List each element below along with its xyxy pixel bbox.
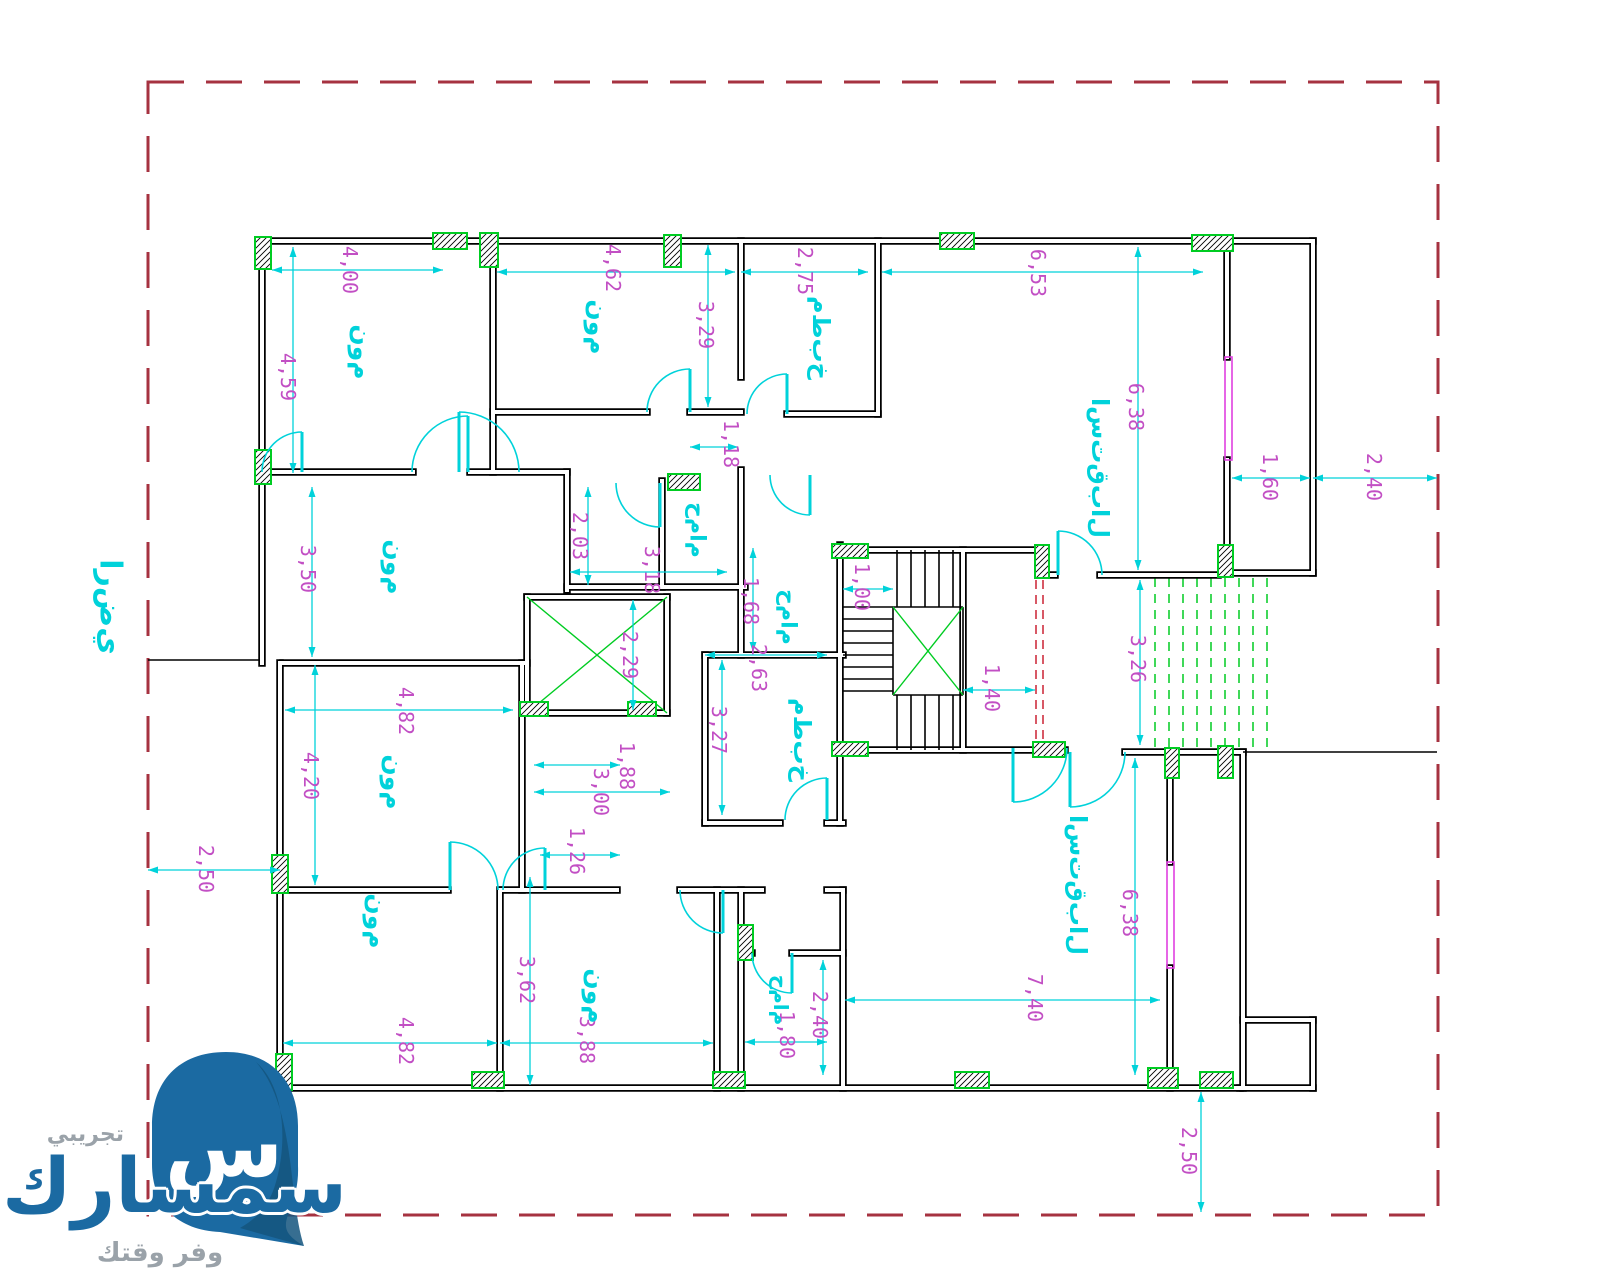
room-label-reception: ل‌ا‌ب‌ق‌ت‌س‌ا bbox=[1086, 398, 1114, 538]
room-label-bathroom: م‌ا‌م‌ح bbox=[685, 502, 710, 558]
dimension: 4,62 bbox=[497, 244, 735, 292]
dim-arrow bbox=[1198, 1092, 1205, 1102]
dim-arrow bbox=[820, 1065, 827, 1075]
dimension: 1,88 bbox=[534, 742, 639, 790]
dimension: 1,26 bbox=[540, 827, 620, 875]
window bbox=[1225, 357, 1232, 460]
dim-arrow bbox=[690, 444, 700, 451]
dim-arrow bbox=[1300, 475, 1310, 482]
dimension: 4,82 bbox=[283, 1017, 497, 1065]
dim-arrow bbox=[705, 397, 712, 407]
door-swing-arc bbox=[785, 778, 827, 820]
dimension: 6,38 bbox=[1118, 758, 1142, 1075]
dimension: 2,75 bbox=[741, 247, 868, 295]
column bbox=[520, 702, 548, 716]
column bbox=[1165, 748, 1179, 778]
column bbox=[1192, 235, 1233, 251]
room-label-bathroom: م‌ا‌م‌ح bbox=[769, 975, 793, 1026]
dim-text: 4,00 bbox=[338, 246, 362, 294]
room-label-bathroom: م‌ا‌م‌ح bbox=[776, 589, 801, 645]
dim-text: 3,00 bbox=[589, 768, 613, 816]
dim-text: 2,63 bbox=[747, 644, 771, 692]
column bbox=[255, 237, 271, 269]
dim-arrow bbox=[1132, 758, 1139, 768]
dim-text: 4,82 bbox=[394, 687, 418, 735]
door bbox=[1070, 752, 1125, 807]
cad-floor-plan-drawing: 4,004,594,623,292,756,536,381,182,033,18… bbox=[0, 0, 1600, 1280]
dim-arrow bbox=[630, 600, 637, 610]
dim-arrow bbox=[1025, 687, 1035, 694]
dimension: 1,18 bbox=[690, 420, 743, 468]
dim-text: 3,50 bbox=[296, 545, 320, 593]
column bbox=[738, 925, 753, 960]
dimension: 1,40 bbox=[963, 664, 1035, 712]
dim-arrow bbox=[1193, 269, 1203, 276]
door bbox=[770, 475, 810, 515]
room-label-bedroom: م‌و‌ن bbox=[362, 893, 392, 948]
dim-text: 2,50 bbox=[1177, 1127, 1201, 1175]
column bbox=[1218, 545, 1233, 577]
dim-arrow bbox=[487, 1040, 497, 1047]
dim-text: 3,27 bbox=[707, 706, 731, 754]
dim-arrow bbox=[285, 707, 295, 714]
dim-arrow bbox=[1198, 1202, 1205, 1212]
driveway-hatch bbox=[1155, 578, 1267, 748]
dim-text: 2,40 bbox=[808, 991, 832, 1039]
door bbox=[785, 778, 827, 820]
column bbox=[940, 233, 974, 249]
dim-text: 7,40 bbox=[1023, 974, 1047, 1022]
dim-text: 1,68 bbox=[739, 577, 763, 625]
door bbox=[647, 369, 690, 412]
dimension: 3,27 bbox=[707, 660, 731, 815]
entrance-opening bbox=[1036, 580, 1043, 745]
dim-arrow bbox=[1135, 247, 1142, 257]
dim-arrow bbox=[883, 586, 893, 593]
dim-arrow bbox=[534, 762, 544, 769]
dim-arrow bbox=[570, 569, 580, 576]
dim-arrow bbox=[717, 569, 727, 576]
dimension: 6,53 bbox=[882, 249, 1203, 297]
dim-arrow bbox=[290, 247, 297, 257]
column bbox=[955, 1072, 989, 1088]
column bbox=[713, 1072, 745, 1088]
dim-arrow bbox=[858, 269, 868, 276]
dim-text: 4,20 bbox=[299, 752, 323, 800]
dim-text: 4,62 bbox=[601, 244, 625, 292]
door-swing-arc bbox=[747, 374, 787, 414]
dimension: 1,60 bbox=[1232, 453, 1310, 501]
dim-text: 4,59 bbox=[276, 353, 300, 401]
dim-arrow bbox=[1427, 475, 1437, 482]
dim-arrow bbox=[527, 1075, 534, 1085]
door bbox=[616, 483, 660, 527]
door-swing-arc bbox=[1070, 752, 1125, 807]
dimension: 4,82 bbox=[285, 687, 513, 735]
room-label-kitchen: خ‌ب‌ط‌م bbox=[807, 296, 835, 381]
windows bbox=[1167, 357, 1232, 968]
dim-arrow bbox=[1132, 1065, 1139, 1075]
column bbox=[433, 233, 467, 249]
dim-text: 2,03 bbox=[568, 512, 592, 560]
door-swing-arc bbox=[770, 475, 810, 515]
dimension: 3,29 bbox=[694, 245, 718, 407]
column bbox=[668, 474, 700, 490]
dim-arrow bbox=[882, 269, 892, 276]
dimension: 2,40 bbox=[1313, 453, 1437, 501]
door-swing-arc bbox=[450, 842, 498, 890]
dim-text: 6,38 bbox=[1124, 383, 1148, 431]
door-swing-arc bbox=[616, 483, 660, 527]
dim-arrow bbox=[1137, 735, 1144, 745]
room-label-bedroom: م‌و‌ن bbox=[379, 754, 409, 809]
dimension: 3,00 bbox=[534, 768, 670, 816]
door bbox=[747, 374, 787, 414]
dimension: 3,26 bbox=[1126, 580, 1150, 745]
dim-text: 3,29 bbox=[694, 301, 718, 349]
dimension: 7,40 bbox=[845, 974, 1160, 1022]
dimension: 2,40 bbox=[808, 960, 832, 1075]
column bbox=[832, 742, 868, 756]
dim-arrow bbox=[817, 1039, 827, 1046]
room-label-bedroom: م‌و‌ن bbox=[380, 539, 410, 594]
dim-arrow bbox=[745, 1039, 755, 1046]
dim-arrow bbox=[1135, 560, 1142, 570]
dim-arrow bbox=[660, 789, 670, 796]
column bbox=[1033, 742, 1065, 757]
column bbox=[1035, 545, 1049, 578]
room-label-bedroom: م‌و‌ن bbox=[347, 324, 377, 379]
dim-text: 1,00 bbox=[850, 563, 874, 611]
dim-text: 6,53 bbox=[1026, 249, 1050, 297]
dim-text: 4,82 bbox=[394, 1017, 418, 1065]
floor-plan-svg: 4,004,594,623,292,756,536,381,182,033,18… bbox=[0, 0, 1600, 1280]
dim-arrow bbox=[1137, 580, 1144, 590]
dim-text: 3,26 bbox=[1126, 635, 1150, 683]
dim-text: 3,62 bbox=[515, 956, 539, 1004]
dimension: 3,50 bbox=[296, 487, 320, 657]
column bbox=[1148, 1068, 1178, 1088]
dimension: 2,50 bbox=[1177, 1092, 1205, 1212]
site-label-ground-floor: ي‌ض‌ر‌ا bbox=[93, 559, 128, 654]
dim-arrow bbox=[433, 267, 443, 274]
dim-text: 2,29 bbox=[618, 631, 642, 679]
room-label-reception: ل‌ا‌ب‌ق‌ت‌س‌ا bbox=[1064, 815, 1092, 955]
dim-text: 6,38 bbox=[1118, 889, 1142, 937]
room-label-kitchen: خ‌ب‌ط‌م bbox=[788, 698, 816, 783]
dim-text: 2,40 bbox=[1362, 453, 1386, 501]
dimension: 2,29 bbox=[618, 600, 642, 710]
dim-text: 2,50 bbox=[194, 845, 218, 893]
dim-arrow bbox=[309, 647, 316, 657]
dim-text: 2,75 bbox=[793, 247, 817, 295]
column bbox=[272, 855, 288, 893]
room-label-bedroom: م‌و‌ن bbox=[581, 968, 611, 1023]
dim-text: 1,60 bbox=[1258, 453, 1282, 501]
column bbox=[480, 233, 498, 267]
dim-arrow bbox=[309, 487, 316, 497]
dim-arrow bbox=[1232, 475, 1242, 482]
dim-arrow bbox=[750, 548, 757, 558]
column bbox=[1218, 746, 1233, 778]
dim-text: 1,18 bbox=[719, 420, 743, 468]
dim-arrow bbox=[312, 875, 319, 885]
dimension: 3,62 bbox=[515, 877, 539, 1085]
dim-arrow bbox=[703, 1040, 713, 1047]
dim-arrow bbox=[272, 267, 282, 274]
dim-arrow bbox=[283, 1040, 293, 1047]
dim-arrow bbox=[610, 852, 620, 859]
dim-arrow bbox=[719, 660, 726, 670]
dim-arrow bbox=[719, 805, 726, 815]
dim-arrow bbox=[534, 789, 544, 796]
dim-arrow bbox=[1150, 997, 1160, 1004]
door bbox=[450, 842, 498, 890]
dim-arrow bbox=[497, 269, 507, 276]
dimension: 4,00 bbox=[272, 246, 443, 294]
dim-text: 3,18 bbox=[640, 546, 664, 594]
dim-text: 1,88 bbox=[615, 742, 639, 790]
dim-arrow bbox=[820, 960, 827, 970]
column bbox=[472, 1072, 504, 1088]
dim-arrow bbox=[527, 877, 534, 887]
column bbox=[832, 544, 868, 558]
dimension: 4,20 bbox=[299, 665, 323, 885]
column bbox=[664, 235, 681, 267]
dim-arrow bbox=[585, 487, 592, 497]
dimension: 1,00 bbox=[843, 563, 893, 611]
room-label-bedroom: م‌و‌ن bbox=[583, 299, 613, 354]
dim-arrow bbox=[705, 245, 712, 255]
dimension: 6,38 bbox=[1124, 247, 1148, 570]
dim-arrow bbox=[725, 269, 735, 276]
dimension: 2,50 bbox=[148, 845, 280, 893]
door-swing-arc bbox=[647, 369, 690, 412]
window bbox=[1167, 862, 1174, 968]
dim-arrow bbox=[503, 707, 513, 714]
column bbox=[1200, 1072, 1233, 1088]
dim-text: 1,26 bbox=[565, 827, 589, 875]
column bbox=[276, 1054, 292, 1090]
dim-text: 1,40 bbox=[980, 664, 1004, 712]
